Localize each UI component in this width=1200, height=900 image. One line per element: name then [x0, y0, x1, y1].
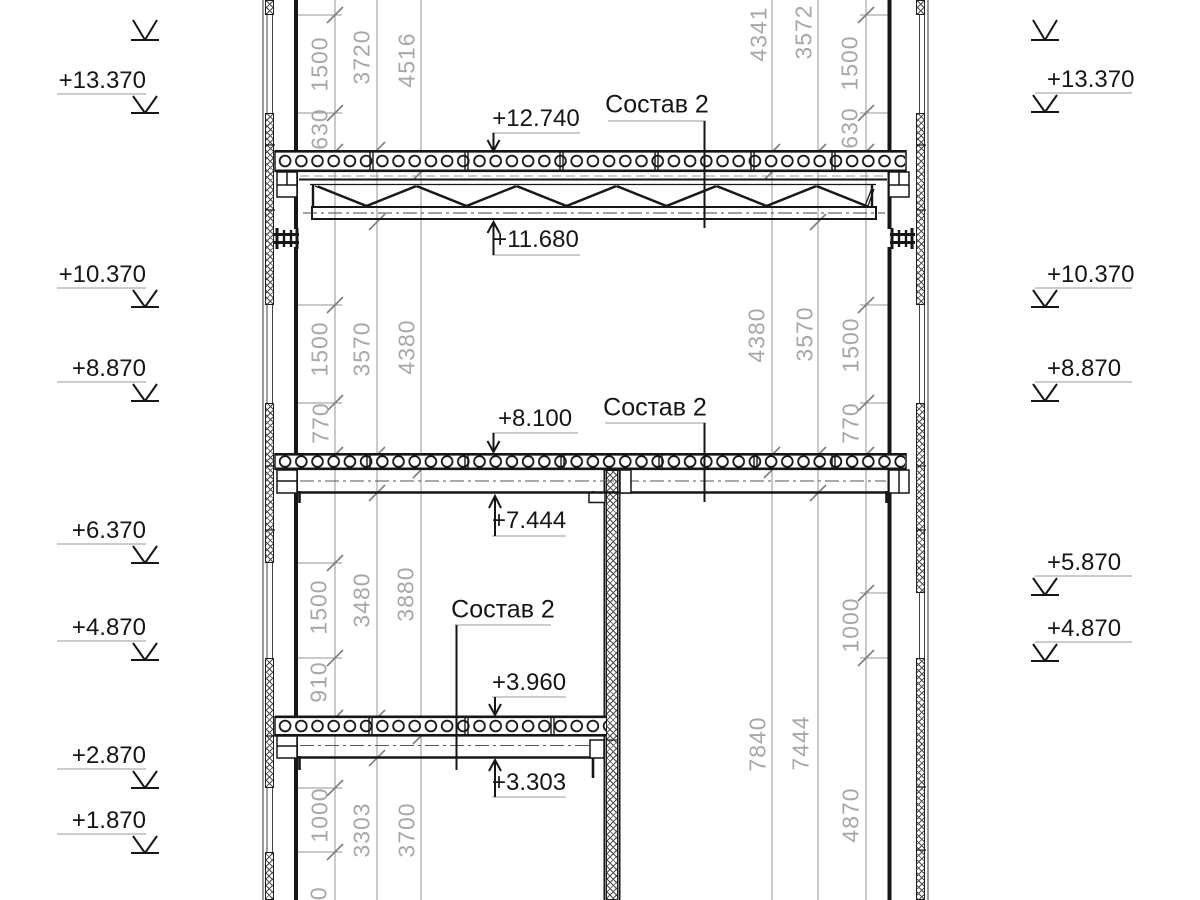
section-drawing: +13.370 +10.370 +8.870 +6.370 +4.870 +2.… — [0, 0, 1200, 900]
level-label: +3.960 — [492, 669, 566, 697]
dimension-text: 1500 — [306, 579, 333, 634]
dimension-text: 4516 — [394, 32, 421, 87]
elevation-mark: +6.370 — [72, 517, 146, 545]
slab-middle — [275, 453, 906, 470]
composition-label: Состав 2 — [451, 596, 555, 625]
dimension-text: 770 — [306, 886, 333, 900]
dimension-text: 1500 — [837, 35, 864, 90]
dimension-text: 770 — [838, 402, 865, 443]
truss — [274, 172, 915, 249]
elevation-mark: +13.370 — [59, 67, 146, 95]
level-label: +3.303 — [492, 769, 566, 797]
dimension-text: 3570 — [349, 321, 376, 376]
slab-lower — [275, 716, 606, 736]
elevation-mark: +10.370 — [1047, 261, 1134, 289]
dimension-text: 630 — [837, 107, 864, 148]
dimension-text: 770 — [308, 402, 335, 443]
interior-wall-faces — [604, 470, 621, 900]
dimension-text: 3720 — [349, 29, 376, 84]
level-label: +8.100 — [498, 405, 572, 433]
elevation-mark: +2.870 — [72, 742, 146, 770]
dimension-text: 1000 — [307, 787, 334, 842]
level-label: +7.444 — [492, 507, 566, 535]
elevation-mark: +1.870 — [72, 807, 146, 835]
elevation-mark: +8.870 — [1047, 355, 1121, 383]
left-wall — [263, 0, 296, 900]
elevation-mark: +8.870 — [72, 355, 146, 383]
dimension-text: 1000 — [838, 597, 865, 652]
dimension-text: 1500 — [307, 321, 334, 376]
elevation-mark: +13.370 — [1047, 66, 1134, 94]
section-linework — [0, 0, 1200, 900]
dimension-text: 3303 — [349, 802, 376, 857]
dimension-text: 7840 — [745, 716, 772, 771]
composition-label: Состав 2 — [605, 91, 709, 120]
elevation-mark: +10.370 — [59, 261, 146, 289]
dimension-text: 3480 — [349, 572, 376, 627]
elevation-mark: +5.870 — [1047, 549, 1121, 577]
dimension-text: 7444 — [788, 715, 815, 770]
dimension-text: 3700 — [394, 802, 421, 857]
dimension-text: 4380 — [744, 307, 771, 362]
dimension-text: 630 — [307, 108, 334, 149]
right-wall — [890, 0, 929, 900]
dimension-text: 3880 — [393, 566, 420, 621]
dimension-text: 1500 — [838, 317, 865, 372]
dimension-text: 4341 — [746, 6, 773, 61]
elevation-mark: +4.870 — [1047, 615, 1121, 643]
dimension-text: 3570 — [792, 306, 819, 361]
composition-label: Состав 2 — [603, 394, 707, 423]
dimension-text: 3572 — [791, 4, 818, 59]
dimension-text: 910 — [306, 661, 333, 702]
level-label: +12.740 — [492, 105, 579, 133]
elevation-mark: +4.870 — [72, 614, 146, 642]
dimension-text: 4870 — [838, 787, 865, 842]
dimension-text: 1500 — [307, 36, 334, 91]
dimension-text: 4380 — [394, 319, 421, 374]
level-label: +11.680 — [493, 226, 579, 254]
slab-top — [275, 150, 906, 172]
